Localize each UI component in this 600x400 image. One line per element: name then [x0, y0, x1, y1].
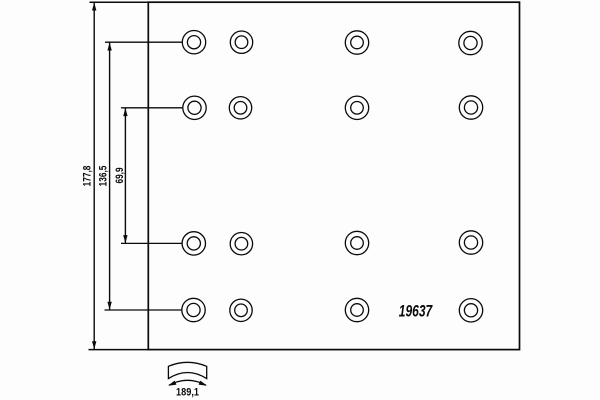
svg-text:69,9: 69,9 [114, 167, 126, 184]
svg-text:189,1: 189,1 [176, 387, 199, 399]
svg-text:19637: 19637 [399, 303, 433, 321]
svg-text:177,8: 177,8 [82, 165, 94, 186]
svg-text:136,5: 136,5 [97, 165, 109, 186]
